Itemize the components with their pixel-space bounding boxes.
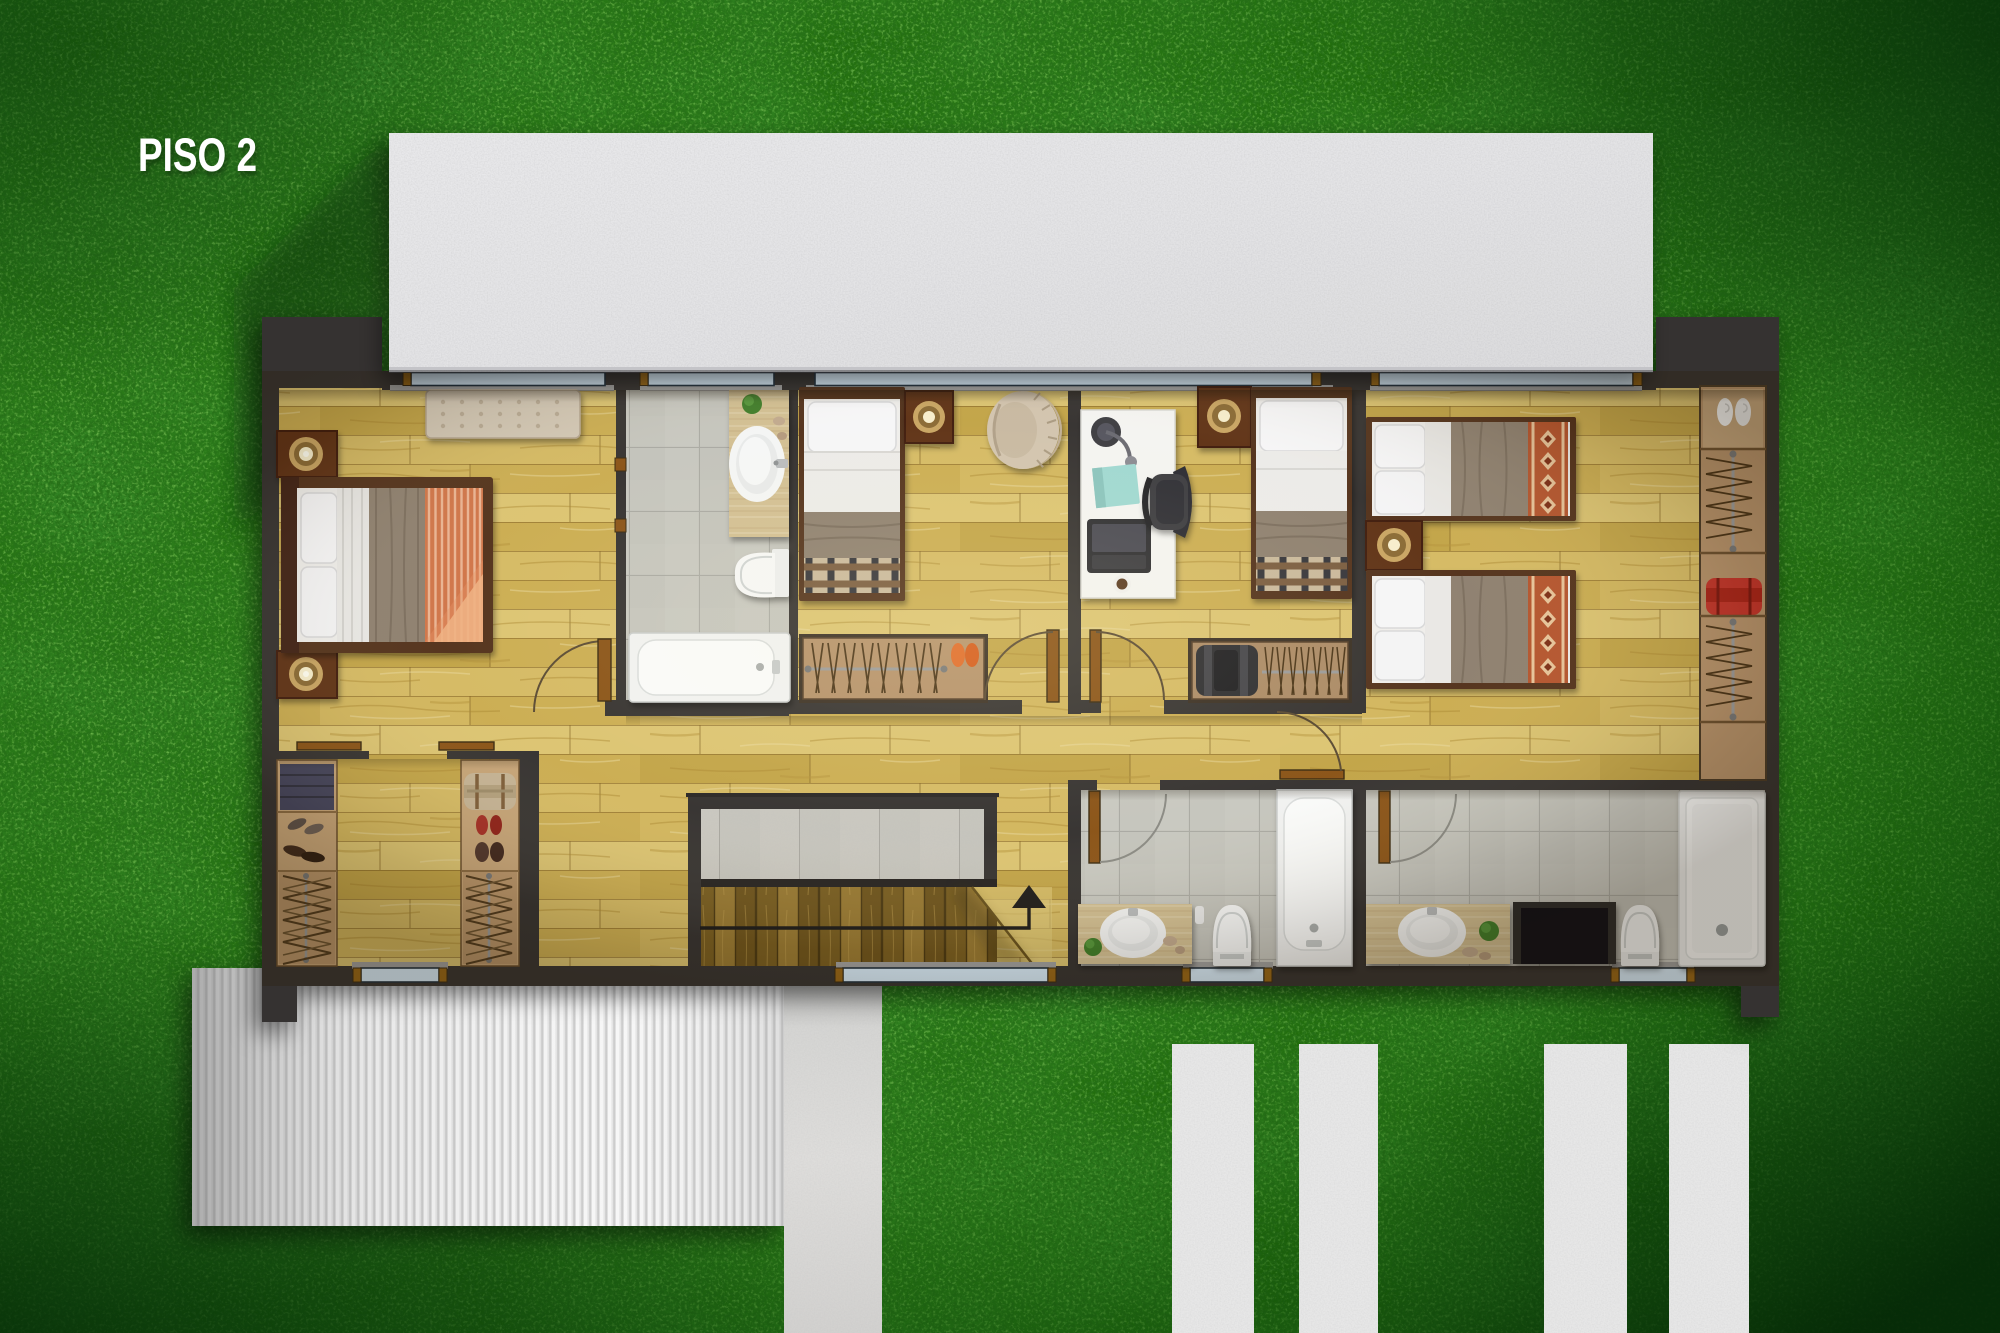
svg-text:PISO 2: PISO 2	[138, 128, 257, 181]
